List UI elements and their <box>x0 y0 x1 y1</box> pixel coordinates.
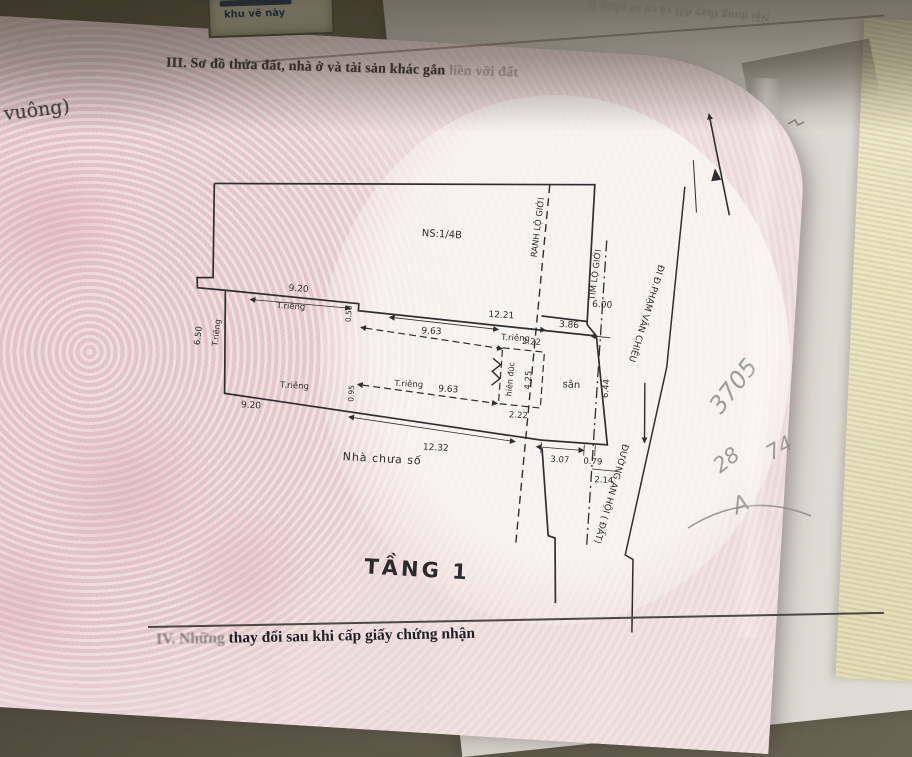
dim-9-63-bottom: 9.63 <box>438 384 459 395</box>
dim-3-86: 3.86 <box>559 320 580 331</box>
house-dashed-bottom <box>362 385 498 404</box>
north-arrow-icon <box>690 113 735 215</box>
dim-2-22-bottom: 2.22 <box>509 410 528 421</box>
smudged-text-bar <box>220 0 292 7</box>
house-top-edge <box>224 290 598 336</box>
road-boundary-label: RANH LỘ GIỚI <box>528 197 547 258</box>
road-far-edge-line <box>621 185 685 634</box>
private-boundary-label: T.riêng <box>275 300 305 313</box>
guilloche-pattern <box>0 145 132 304</box>
next-section-heading-faded: IV. Những <box>156 630 225 648</box>
section-heading-faded: liền với đất <box>449 64 519 81</box>
private-boundary-label: T.riêng <box>393 378 423 391</box>
dim-0-79: 0.79 <box>583 457 602 468</box>
pencil-squiggle <box>12 22 76 56</box>
corner-legend-box: khu vẽ này <box>207 0 334 38</box>
private-boundary-label: T.riêng <box>279 379 309 392</box>
small-ink-mark <box>786 116 806 130</box>
door-zigzag-icon <box>491 358 500 385</box>
dim-9-20-top: 9.20 <box>288 284 309 295</box>
porch-label: hiên đúc <box>503 362 516 397</box>
house-label: Nhà chưa số <box>342 450 422 467</box>
photo-of-land-certificate: Nội dung thay đổi và cơ sở pháp lý khu v… <box>0 0 912 652</box>
dim-9-63-top: 9.63 <box>421 326 442 337</box>
floor-plan-drawing: NS:1/4B 9.20 T.riêng 12.21 T.riêng 0.50 … <box>138 76 767 639</box>
upper-lot-left-edge <box>196 183 231 290</box>
dim-12-21: 12.21 <box>488 310 514 321</box>
direction-label: ĐI Đ.PHẠM VĂN CHIÊU <box>626 263 667 363</box>
dim-0-95: 0.95 <box>346 385 356 402</box>
parcel-number-label: NS:1/4B <box>421 228 462 241</box>
dim-9-20-bottom: 9.20 <box>241 400 262 411</box>
road-direction-arrow <box>642 383 648 443</box>
dim-3-07: 3.07 <box>550 455 569 466</box>
dim-6-44: 6.44 <box>601 379 613 399</box>
corner-box-label: khu vẽ này <box>224 6 332 21</box>
road-side-line <box>533 448 564 603</box>
dim-2-22-top: 2.22 <box>522 337 541 348</box>
next-section-heading-text: thay đổi sau khi cấp giấy chứng nhận <box>224 625 475 647</box>
floor-title: TẦNG 1 <box>364 550 471 584</box>
road-center-label: TIM LỘ GIỚI <box>586 248 604 301</box>
private-boundary-label: T.riêng <box>209 319 222 348</box>
dim-6-50: 6.50 <box>193 326 205 346</box>
dim-0-50: 0.50 <box>344 305 354 322</box>
dim-4-25: 4.25 <box>523 370 535 390</box>
dim-2-14: 2.14 <box>594 475 613 486</box>
yard-label: sân <box>562 378 580 391</box>
dim-12-32: 12.32 <box>423 443 449 454</box>
